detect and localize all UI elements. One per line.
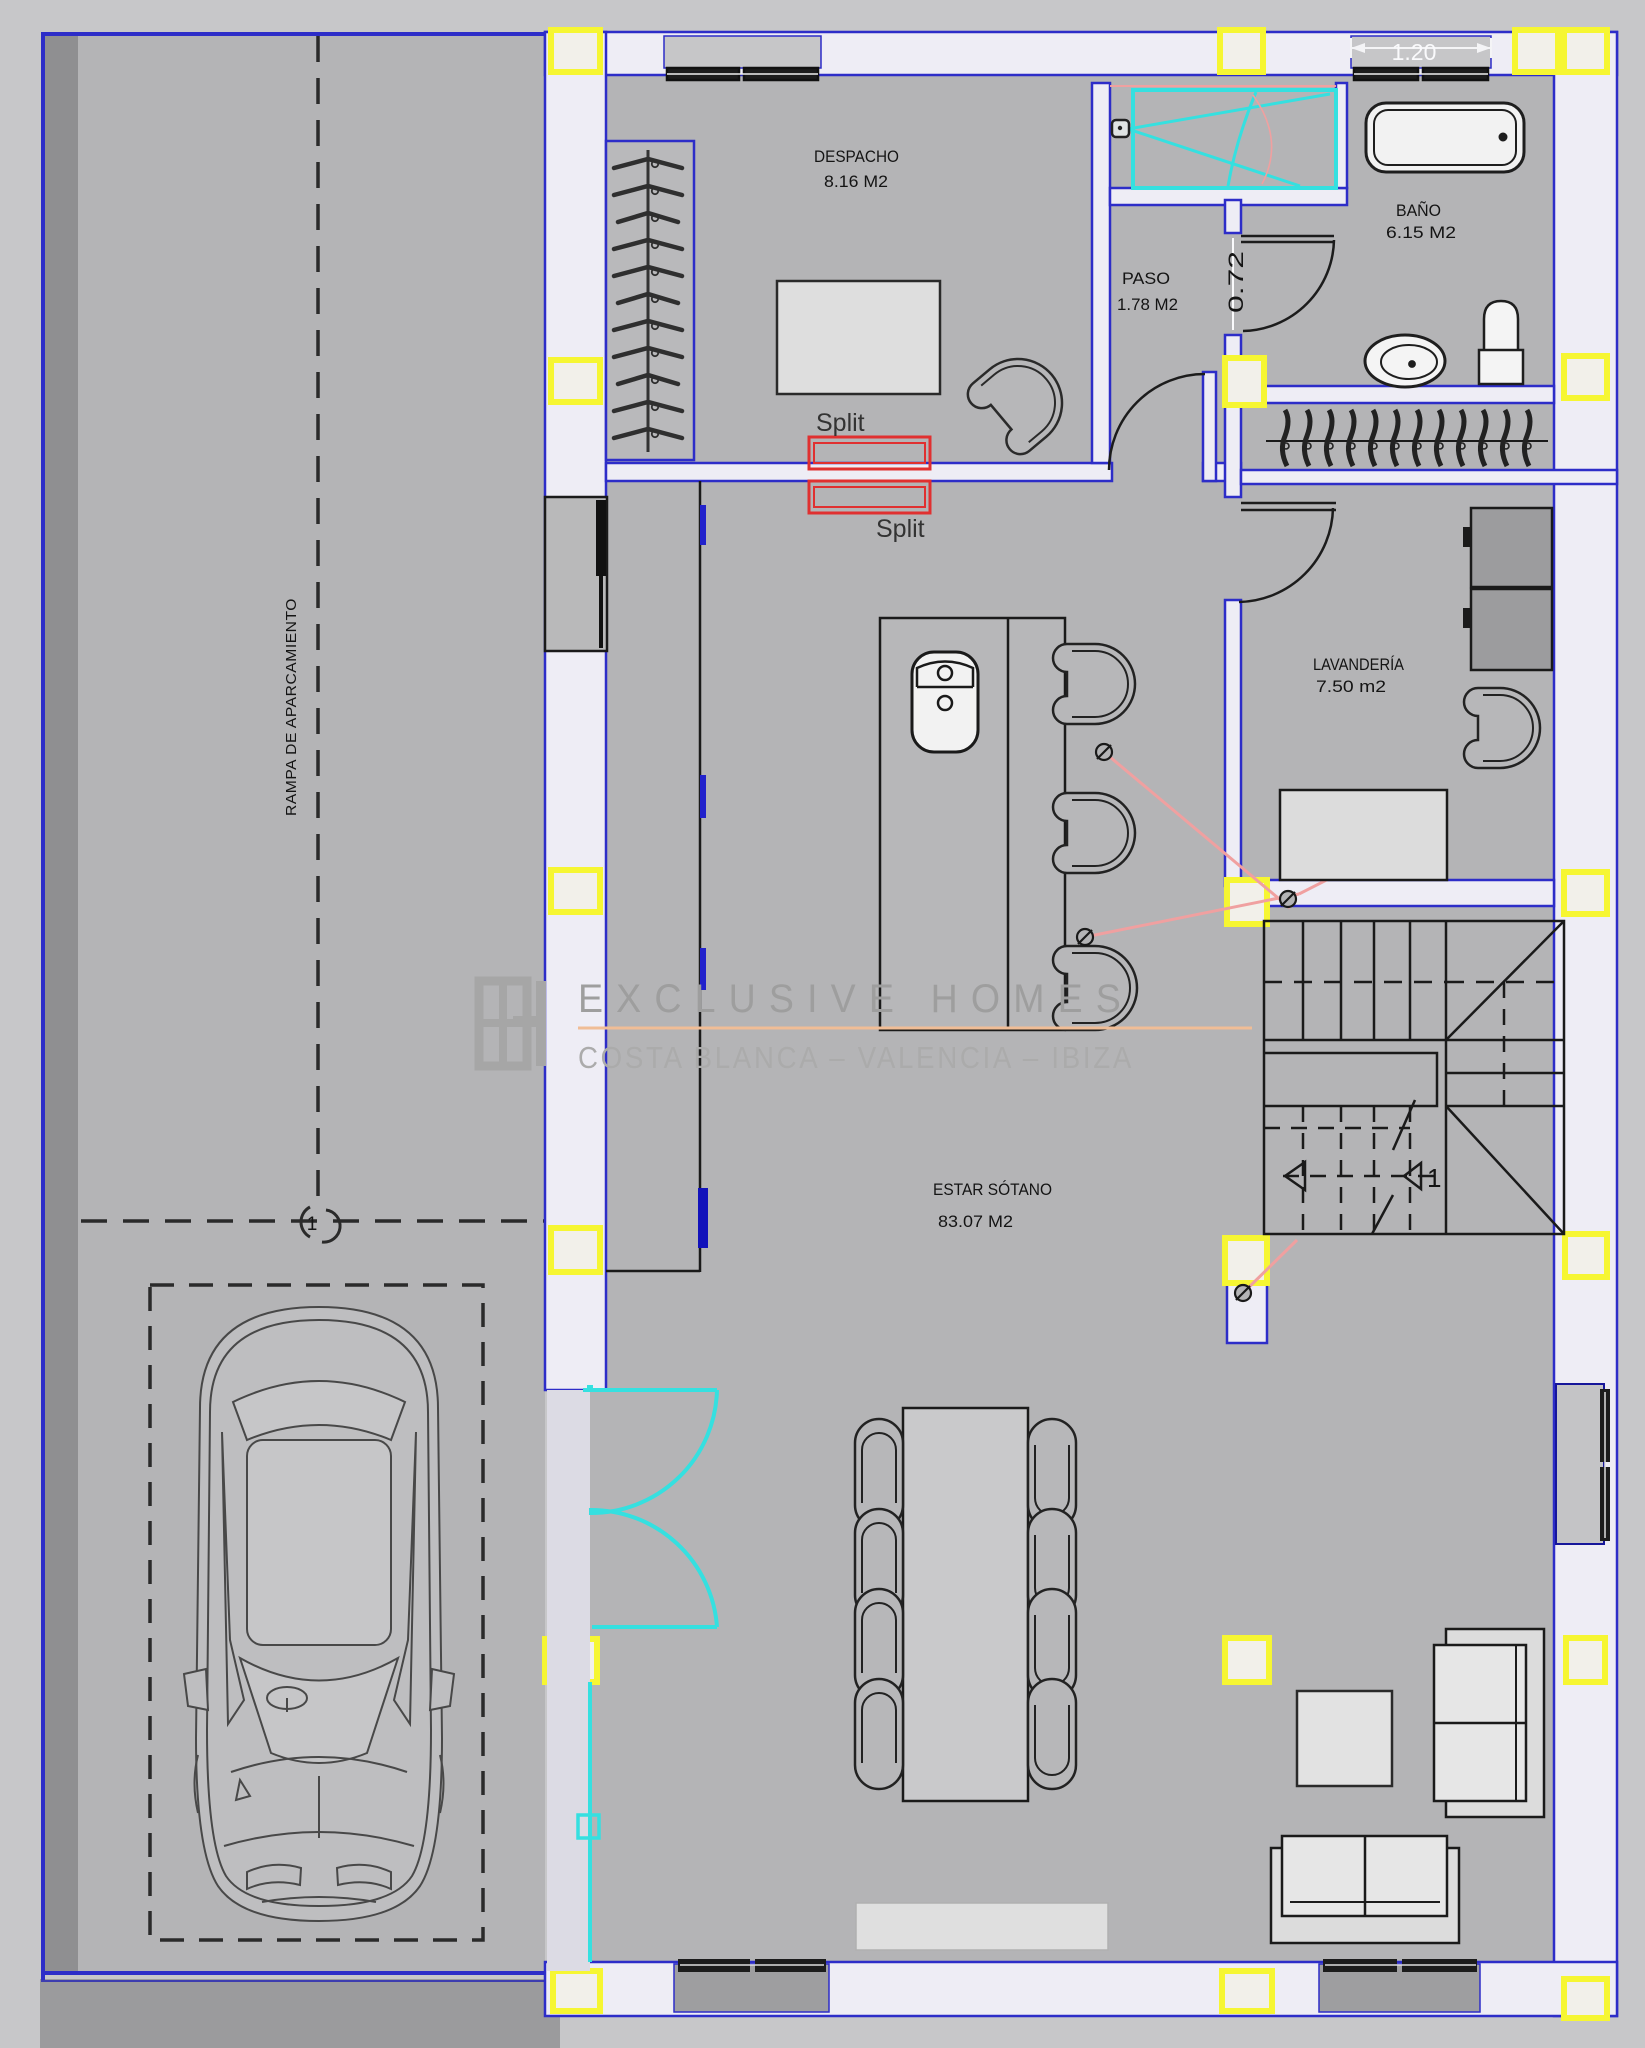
svg-text:1.78 M2: 1.78 M2 (1117, 295, 1178, 314)
svg-text:Split: Split (816, 409, 865, 437)
svg-text:LAVANDERÍA: LAVANDERÍA (1313, 655, 1405, 674)
svg-text:0.72: 0.72 (1225, 251, 1248, 313)
svg-text:8.16 M2: 8.16 M2 (824, 172, 888, 191)
svg-text:Split: Split (876, 515, 925, 543)
svg-text:COSTA BLANCA – VALENCIA – IBIZ: COSTA BLANCA – VALENCIA – IBIZA (578, 1040, 1134, 1075)
svg-text:7.50 m2: 7.50 m2 (1316, 677, 1386, 696)
svg-text:DESPACHO: DESPACHO (814, 147, 899, 166)
svg-text:6.15 M2: 6.15 M2 (1386, 223, 1456, 242)
svg-text:1.20: 1.20 (1392, 39, 1437, 65)
svg-text:83.07 M2: 83.07 M2 (938, 1212, 1013, 1231)
svg-text:EXCLUSIVE HOMES: EXCLUSIVE HOMES (578, 977, 1134, 1021)
svg-text:ESTAR SÓTANO: ESTAR SÓTANO (933, 1180, 1052, 1199)
svg-text:BAÑO: BAÑO (1396, 201, 1441, 220)
svg-text:1: 1 (307, 1214, 318, 1235)
svg-text:RAMPA DE APARCAMIENTO: RAMPA DE APARCAMIENTO (283, 598, 300, 816)
svg-text:PASO: PASO (1122, 269, 1170, 288)
svg-text:1: 1 (1427, 1163, 1441, 1193)
